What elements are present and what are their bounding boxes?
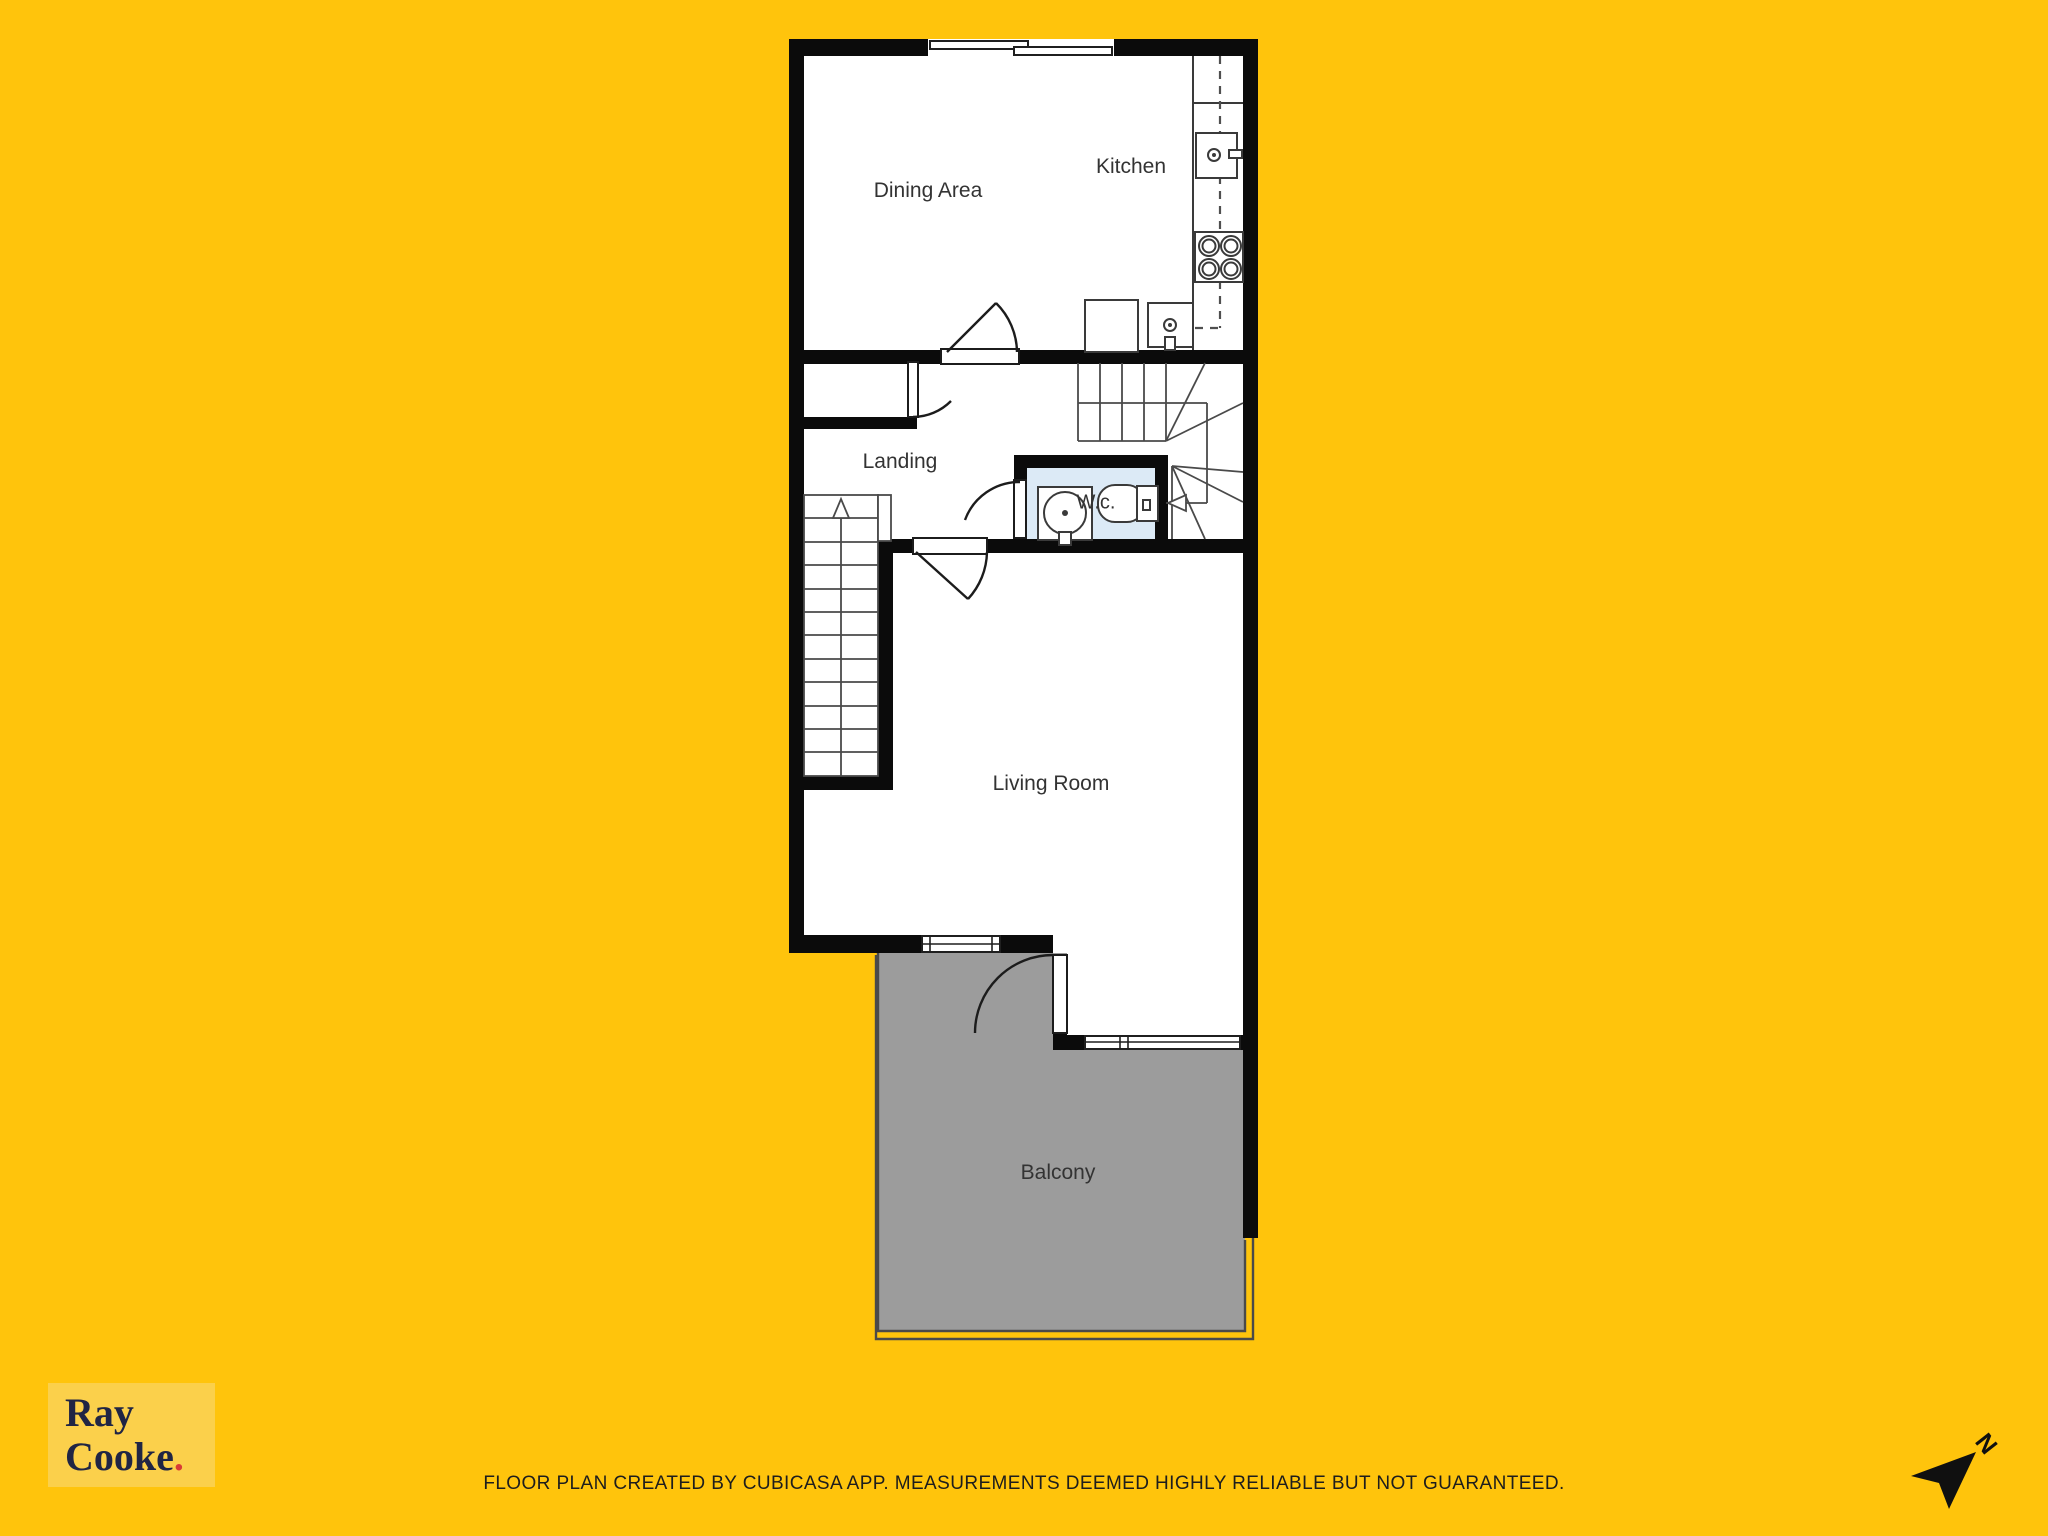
appliance-icon bbox=[1085, 300, 1138, 352]
agency-logo: Ray Cooke. bbox=[48, 1383, 215, 1487]
window-top-sliding bbox=[928, 39, 1114, 56]
room-label-kitchen: Kitchen bbox=[1096, 155, 1166, 179]
window-living-southeast bbox=[1085, 1036, 1240, 1049]
floor-plan-drawing bbox=[0, 0, 2048, 1536]
room-label-wc: W.c. bbox=[1077, 492, 1116, 515]
room-label-living-room: Living Room bbox=[993, 772, 1110, 796]
floor-plan-page: Dining Area Kitchen Landing W.c. Living … bbox=[0, 0, 2048, 1536]
room-label-balcony: Balcony bbox=[1021, 1161, 1096, 1185]
disclaimer-text: FLOOR PLAN CREATED BY CUBICASA APP. MEAS… bbox=[0, 1473, 2048, 1495]
utility-sink-icon bbox=[1148, 303, 1193, 350]
room-label-dining-area: Dining Area bbox=[874, 179, 983, 203]
room-label-landing: Landing bbox=[863, 450, 938, 474]
kitchen-sink-icon bbox=[1196, 133, 1242, 178]
agency-name-line1: Ray bbox=[65, 1391, 215, 1435]
north-arrow-icon: N bbox=[1895, 1420, 2025, 1535]
stove-icon bbox=[1195, 232, 1243, 282]
window-living-bottom bbox=[922, 936, 1000, 952]
